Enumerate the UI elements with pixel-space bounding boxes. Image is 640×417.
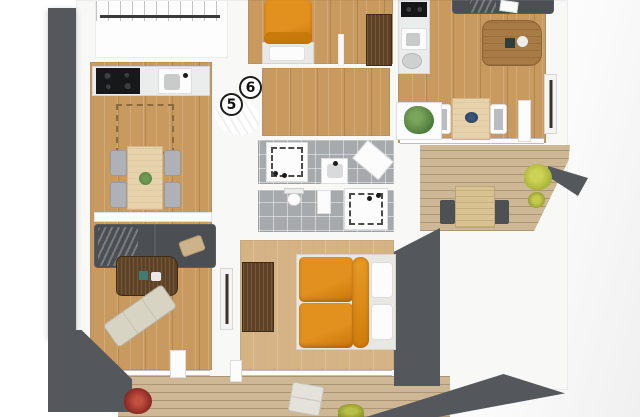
potted-plant-icon bbox=[404, 106, 434, 134]
stair-handrail bbox=[100, 15, 220, 18]
hallway-floor bbox=[262, 68, 390, 136]
cooktop-icon bbox=[96, 68, 140, 94]
deck-plant-red bbox=[124, 388, 152, 414]
stair-steps bbox=[96, 1, 227, 21]
dining-chair bbox=[164, 150, 181, 176]
bed-runner bbox=[352, 257, 369, 348]
bed-single-pillow bbox=[269, 46, 305, 61]
terrace-plant-yellow bbox=[524, 164, 552, 190]
sideboard-left bbox=[94, 212, 212, 222]
bed-double-duvet-b bbox=[299, 303, 353, 348]
bed-single-duvet bbox=[264, 0, 312, 44]
terrace-table bbox=[455, 186, 495, 228]
coffee-table-left bbox=[116, 256, 178, 296]
kitchen-sink-icon bbox=[158, 68, 192, 94]
radiator-right bbox=[544, 74, 557, 134]
magazine-icon bbox=[499, 0, 518, 13]
bed-double-duvet-a bbox=[299, 257, 353, 302]
unit-number-5: 5 bbox=[220, 93, 243, 116]
washbasin-top bbox=[321, 158, 348, 184]
exterior-wall-left bbox=[48, 8, 76, 338]
pot-icon bbox=[402, 53, 422, 69]
dining-chair bbox=[110, 150, 127, 176]
bowl-blue-icon bbox=[465, 112, 478, 123]
dining-chair bbox=[110, 182, 127, 208]
shower-top bbox=[266, 142, 308, 182]
exterior-wall-right-of-bedroom bbox=[394, 228, 440, 386]
chair-right-b bbox=[490, 104, 507, 134]
unit-number-6-label: 6 bbox=[246, 81, 256, 95]
unit-number-6: 6 bbox=[239, 76, 262, 99]
toilet-icon bbox=[284, 188, 304, 206]
cooktop-right-icon bbox=[401, 2, 427, 17]
bed-pillow-b bbox=[371, 304, 393, 340]
dining-chair bbox=[164, 182, 181, 208]
wood-table-right bbox=[482, 20, 542, 66]
radiator-left bbox=[220, 268, 233, 330]
table-plant-icon bbox=[139, 172, 152, 185]
staircase-floor bbox=[95, 0, 228, 58]
bath-partition bbox=[317, 190, 331, 214]
window-bedroom-south bbox=[242, 370, 392, 376]
terrace-chair-left bbox=[440, 200, 455, 224]
deck-plant-yellow bbox=[338, 404, 364, 417]
unit-number-5-label: 5 bbox=[227, 98, 237, 112]
sill-right bbox=[518, 100, 531, 142]
deck-planter bbox=[230, 360, 242, 382]
terrace-chair-right bbox=[494, 200, 509, 224]
deck-lounger bbox=[288, 381, 325, 416]
bed-pillow-a bbox=[371, 262, 393, 298]
wardrobe-bottom bbox=[242, 262, 274, 332]
floorplan-scene: 6 5 bbox=[0, 0, 640, 417]
wall-stub-bedroom-top bbox=[338, 34, 344, 66]
shower-bottom bbox=[344, 188, 388, 230]
terrace-door-sill bbox=[170, 350, 186, 378]
bench-blanket-teal bbox=[470, 0, 496, 13]
kitchen-sink-right-icon bbox=[401, 28, 427, 50]
wardrobe-top bbox=[366, 14, 392, 66]
